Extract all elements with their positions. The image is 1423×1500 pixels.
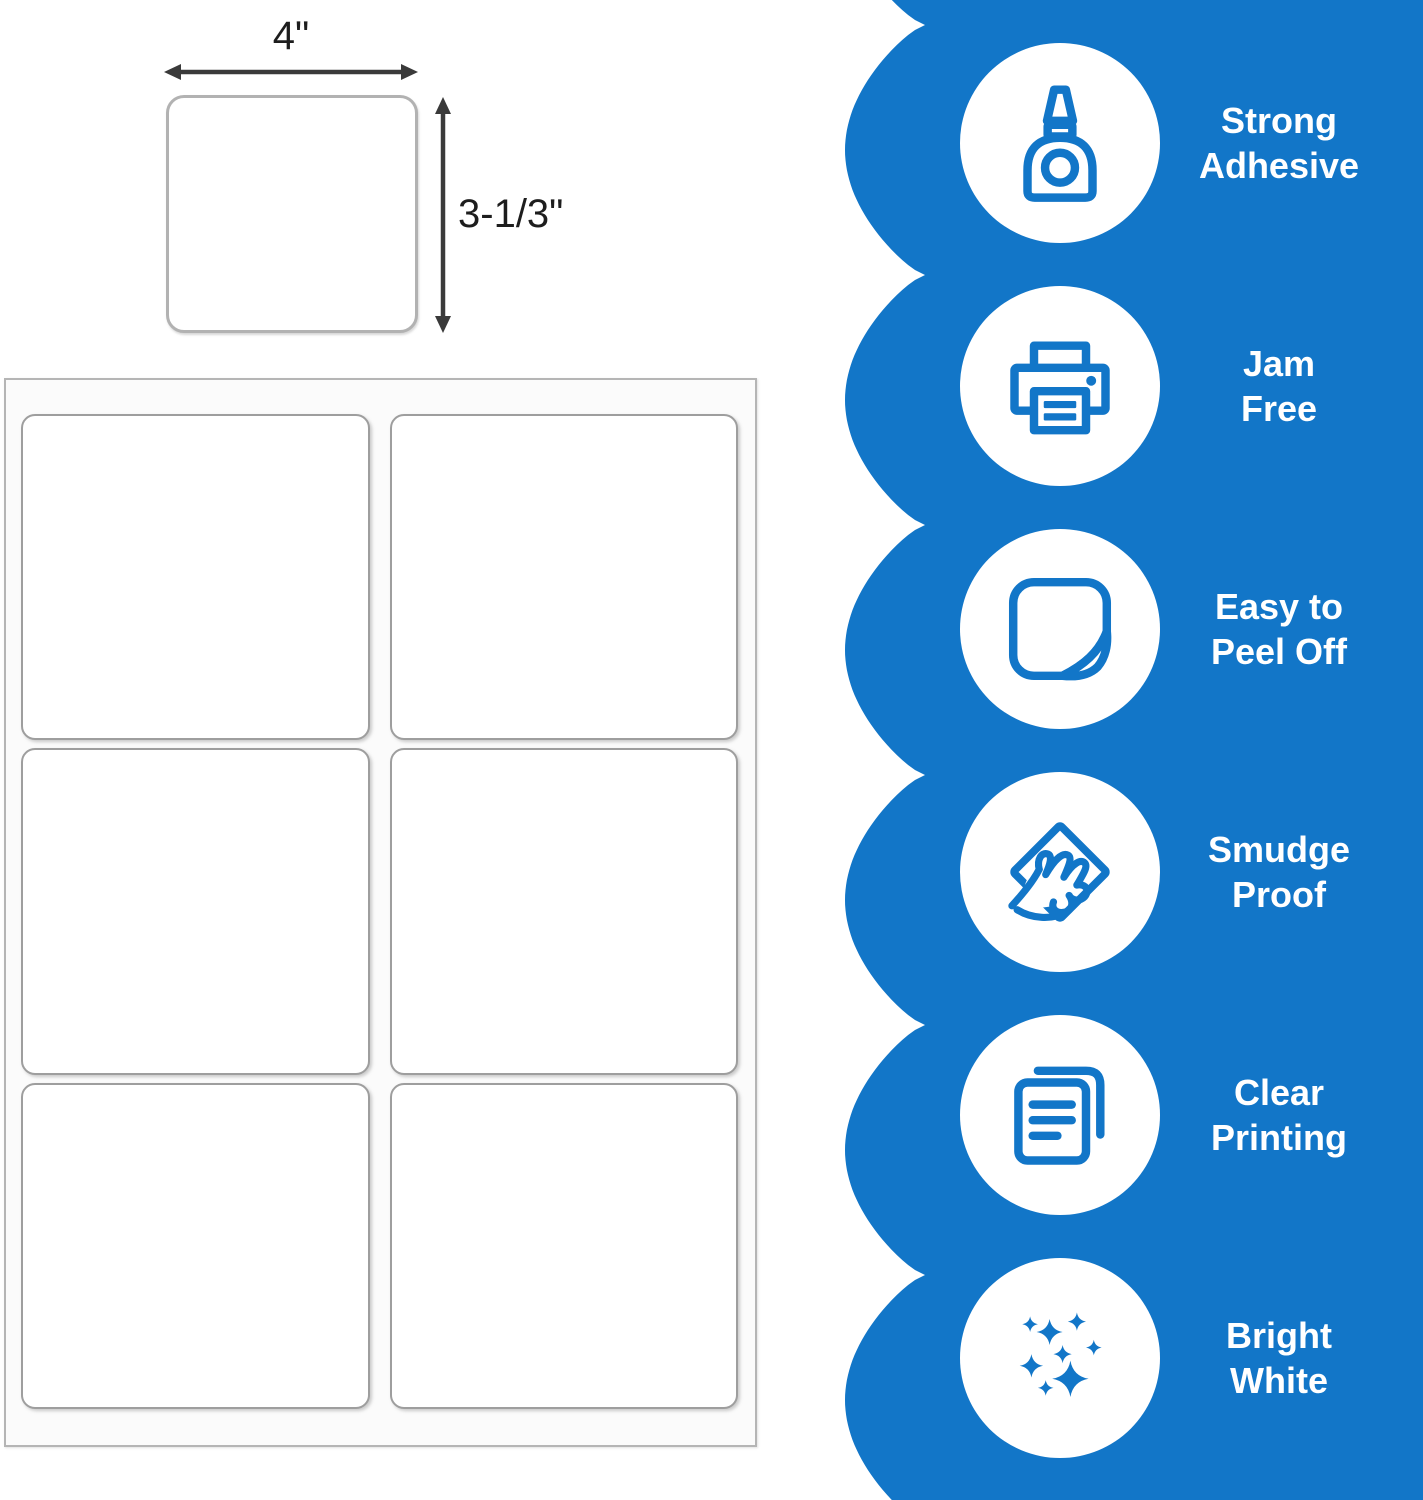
feature-label: Smudge Proof <box>1160 827 1423 917</box>
product-infographic: 4" 3-1/3" Strong <box>0 0 1423 1500</box>
smudge-hand-icon <box>995 807 1125 937</box>
feature-label: Jam Free <box>1160 341 1423 431</box>
feature-icon-circle <box>960 286 1160 486</box>
feature-icon-circle <box>960 1258 1160 1458</box>
feature-clear-printing: Clear Printing <box>960 1015 1423 1215</box>
printer-icon <box>995 321 1125 451</box>
feature-label: Strong Adhesive <box>1160 98 1423 188</box>
feature-bright-white: Bright White <box>960 1258 1423 1458</box>
feature-label: Easy to Peel Off <box>1160 584 1423 674</box>
feature-easy-peel: Easy to Peel Off <box>960 529 1423 729</box>
sparkles-icon <box>995 1293 1125 1423</box>
glue-bottle-icon <box>995 78 1125 208</box>
feature-label: Clear Printing <box>1160 1070 1423 1160</box>
feature-smudge-proof: Smudge Proof <box>960 772 1423 972</box>
feature-icon-circle <box>960 1015 1160 1215</box>
feature-icon-circle <box>960 43 1160 243</box>
feature-strong-adhesive: Strong Adhesive <box>960 43 1423 243</box>
feature-jam-free: Jam Free <box>960 286 1423 486</box>
feature-icon-circle <box>960 772 1160 972</box>
feature-icon-circle <box>960 529 1160 729</box>
peel-sticker-icon <box>995 564 1125 694</box>
documents-icon <box>995 1050 1125 1180</box>
feature-label: Bright White <box>1160 1313 1423 1403</box>
